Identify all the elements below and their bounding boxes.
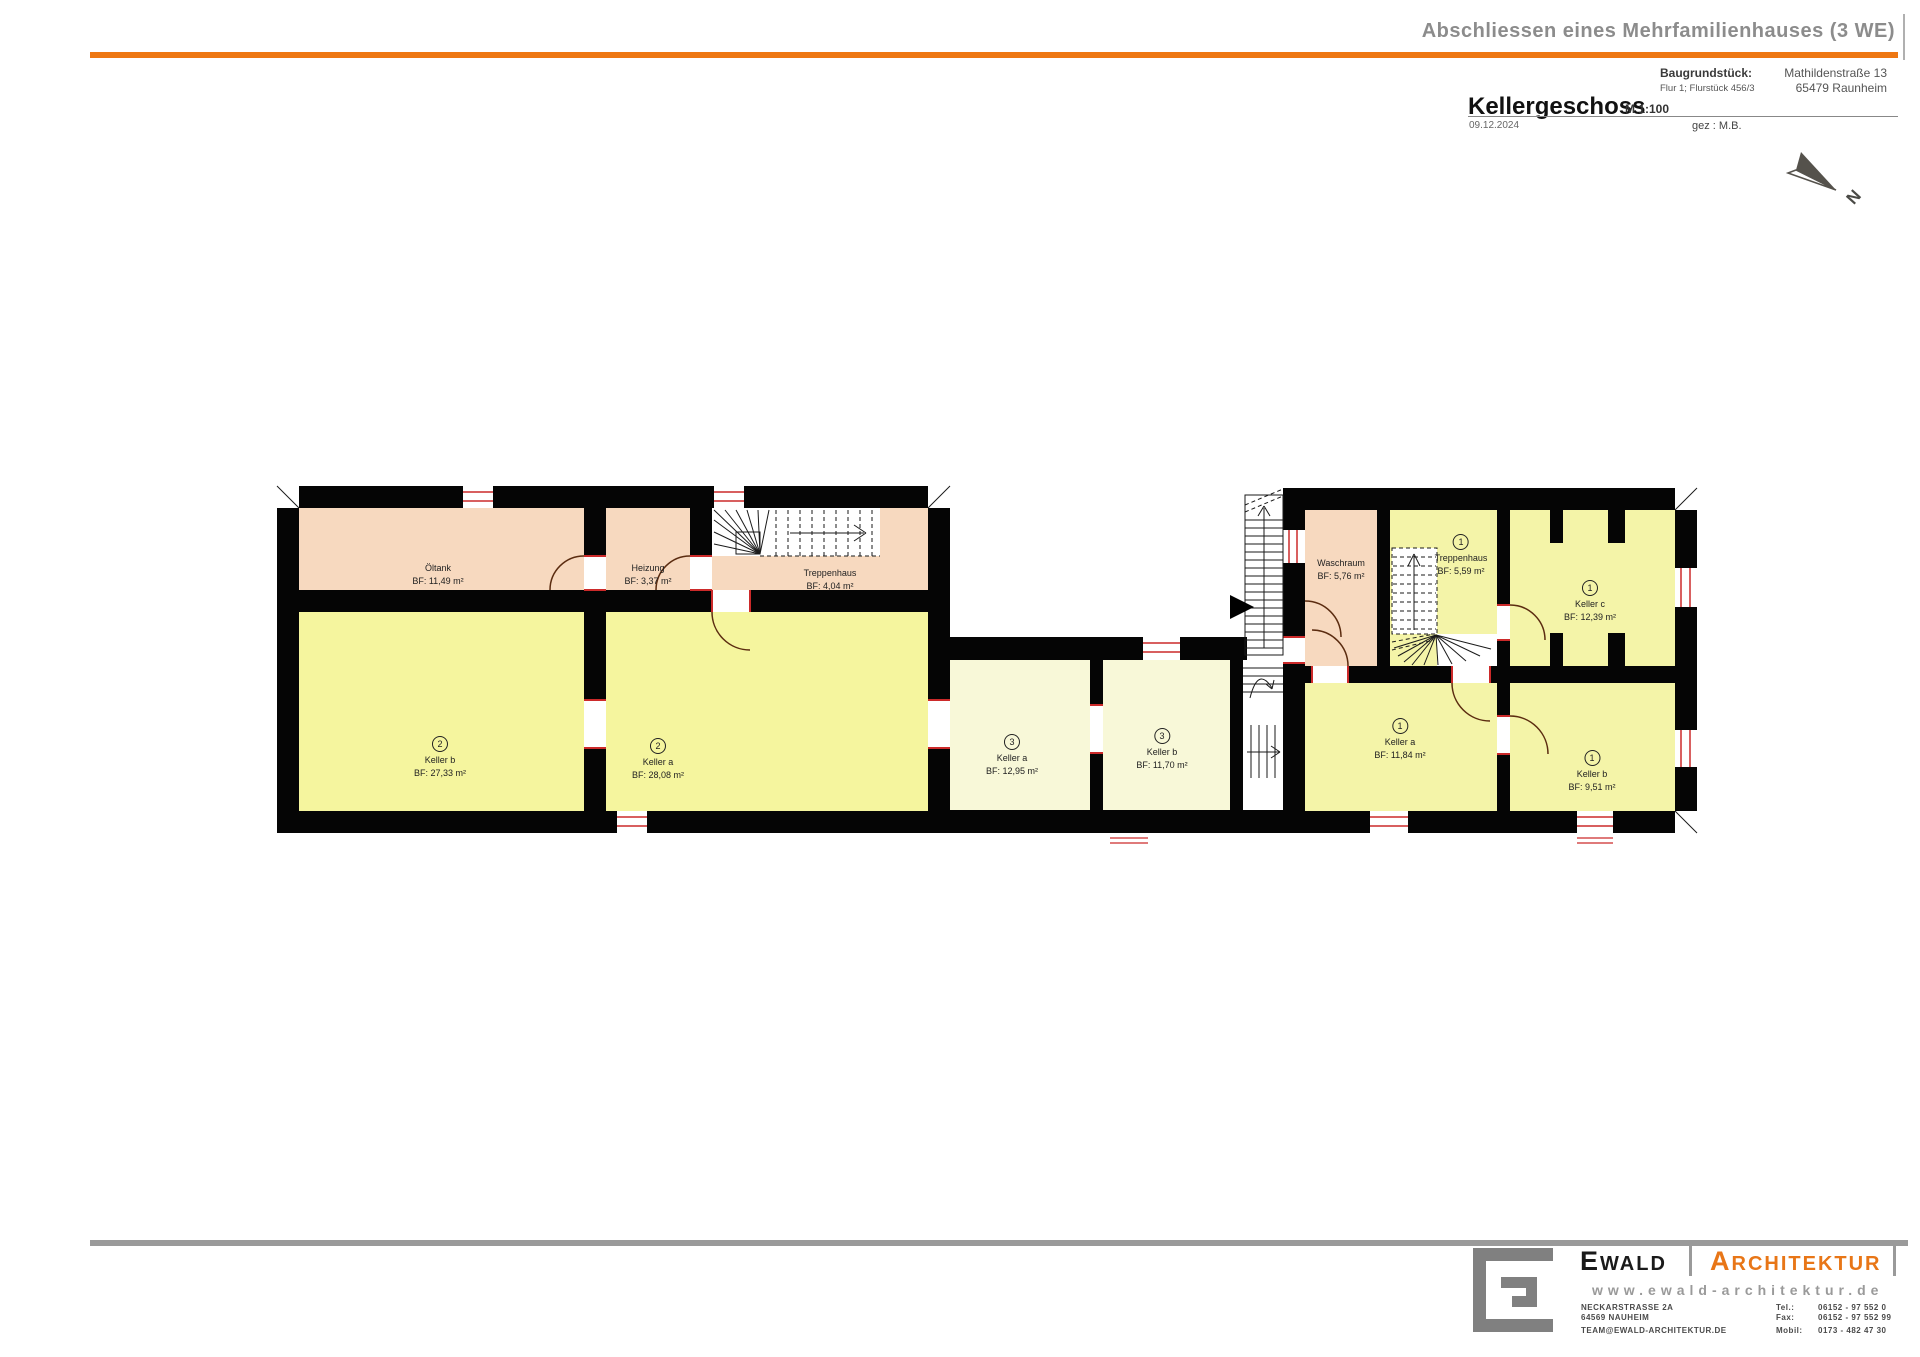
project-title: Abschliessen eines Mehrfamilienhauses (3… (1422, 20, 1895, 43)
room-label-keller-a-1: 1 Keller aBF: 11,84 m² (1374, 718, 1425, 762)
mobil-value: 0173 - 482 47 30 (1818, 1326, 1887, 1335)
brand-architektur: ARCHITEKTUR (1710, 1246, 1882, 1277)
stairs-corridor (1243, 668, 1283, 778)
pillar-nib (1608, 510, 1625, 543)
pillar-nib (1550, 633, 1563, 666)
wall (1283, 563, 1305, 637)
wall (1348, 666, 1452, 683)
north-arrow: N (1788, 152, 1865, 208)
wall (1675, 767, 1697, 811)
door-opening (1283, 637, 1305, 663)
wall (1510, 666, 1675, 683)
stair-flight-background-right (1392, 548, 1437, 634)
wall (1497, 510, 1510, 605)
wall (1283, 811, 1370, 833)
unit-number: 2 (650, 738, 666, 754)
fax-value: 06152 - 97 552 99 (1818, 1313, 1891, 1322)
unit-number: 1 (1392, 718, 1408, 734)
brand-divider (1893, 1246, 1896, 1276)
wall (1613, 811, 1675, 833)
drawing-sheet: Abschliessen eines Mehrfamilienhauses (3… (0, 0, 1920, 1357)
wall (584, 508, 606, 556)
wall (299, 590, 712, 612)
room-fill-waschraum (1305, 510, 1377, 666)
unit-number: 1 (1453, 534, 1469, 550)
title-underline (1468, 116, 1898, 117)
plot-value: Flur 1; Flurstück 456/3 (1660, 83, 1755, 94)
site-address-city: 65479 Raunheim (1796, 81, 1887, 95)
wall (584, 612, 606, 700)
unit-number: 1 (1584, 750, 1600, 766)
wall (647, 811, 950, 833)
fax-label: Fax: (1776, 1313, 1794, 1322)
wall (1180, 637, 1247, 660)
wall (1675, 607, 1697, 730)
wall (1283, 488, 1675, 510)
room-label-keller-b-1: 1 Keller bBF: 9,51 m² (1568, 750, 1615, 794)
brand-divider (1689, 1246, 1692, 1276)
wall (1377, 510, 1390, 666)
accent-rule (90, 52, 1898, 58)
door-opening (1090, 705, 1103, 753)
pillar-nib (1608, 633, 1625, 666)
wall (1305, 666, 1312, 683)
room-label-keller-b-2: 2 Keller bBF: 27,33 m² (414, 736, 466, 780)
door-opening (928, 700, 950, 748)
brand-architektur-wrap: ARCHITEKTUR (1710, 1246, 1882, 1277)
tel-label: Tel.: (1776, 1303, 1794, 1312)
stair-landing-background-right (1437, 634, 1497, 666)
room-label-treppenhaus-right: 1 TreppenhausBF: 5,59 m² (1435, 534, 1488, 578)
wall (299, 486, 463, 508)
wall (1497, 640, 1510, 716)
drawing-scale: M 1:100 (1625, 102, 1669, 116)
wall (750, 590, 928, 612)
drawing-date: 09.12.2024 (1469, 120, 1519, 131)
wall (277, 508, 299, 833)
stair-background-left (712, 508, 880, 556)
wall (690, 508, 712, 556)
door-opening (584, 700, 606, 748)
wall (1090, 660, 1103, 705)
mobil-label: Mobil: (1776, 1326, 1803, 1335)
wall (493, 486, 714, 508)
wall (1490, 666, 1497, 683)
room-label-treppenhaus-left: TreppenhausBF: 4,04 m² (804, 567, 857, 593)
office-email[interactable]: TEAM@EWALD-ARCHITEKTUR.DE (1581, 1326, 1727, 1335)
wall (277, 811, 617, 833)
window-sills (1110, 838, 1613, 843)
brand-name: EWALD (1580, 1246, 1667, 1277)
wall (1283, 510, 1305, 530)
tel-value: 06152 - 97 552 0 (1818, 1303, 1887, 1312)
edge-line (1903, 14, 1905, 60)
wall (584, 748, 606, 811)
north-label: N (1843, 186, 1865, 208)
unit-number: 3 (1004, 734, 1020, 750)
room-label-waschraum: WaschraumBF: 5,76 m² (1317, 557, 1365, 583)
website-link[interactable]: www.ewald-architektur.de (1592, 1282, 1883, 1298)
office-street: NECKARSTRASSE 2A (1581, 1303, 1673, 1312)
room-label-keller-a-2: 2 Keller aBF: 28,08 m² (632, 738, 684, 782)
wall (1230, 660, 1243, 810)
unit-number: 1 (1582, 580, 1598, 596)
pillar-nib (1550, 510, 1563, 543)
plot-label: Baugrundstück: (1660, 66, 1752, 80)
entrance-marker (1230, 595, 1254, 619)
stairs-exterior (1245, 489, 1283, 655)
unit-number: 3 (1154, 728, 1170, 744)
door-opening (584, 556, 606, 590)
room-label-keller-c-1: 1 Keller cBF: 12,39 m² (1564, 580, 1616, 624)
wall (950, 637, 1143, 660)
site-address-street: Mathildenstraße 13 (1784, 66, 1887, 80)
logo-mark (1473, 1319, 1553, 1332)
wall (1408, 811, 1577, 833)
room-label-keller-b-3: 3 Keller bBF: 11,70 m² (1136, 728, 1187, 772)
wall (1497, 754, 1510, 811)
door-opening (690, 556, 712, 590)
room-label-oeltank: ÖltankBF: 11,49 m² (412, 562, 463, 588)
office-city: 64569 NAUHEIM (1581, 1313, 1649, 1322)
wall (744, 486, 928, 508)
room-label-heizung: HeizungBF: 3,37 m² (624, 562, 671, 588)
unit-number: 2 (432, 736, 448, 752)
logo-mark (1512, 1296, 1537, 1307)
room-fill-yellow-left (299, 612, 928, 811)
brand-ewald: EWALD (1580, 1246, 1667, 1277)
wall (950, 810, 1303, 833)
wall (1283, 663, 1305, 833)
wall (1675, 510, 1697, 568)
drawn-by: gez : M.B. (1692, 120, 1742, 132)
wall (928, 508, 950, 700)
wall (1090, 753, 1103, 810)
room-label-keller-a-3: 3 Keller aBF: 12,95 m² (986, 734, 1038, 778)
